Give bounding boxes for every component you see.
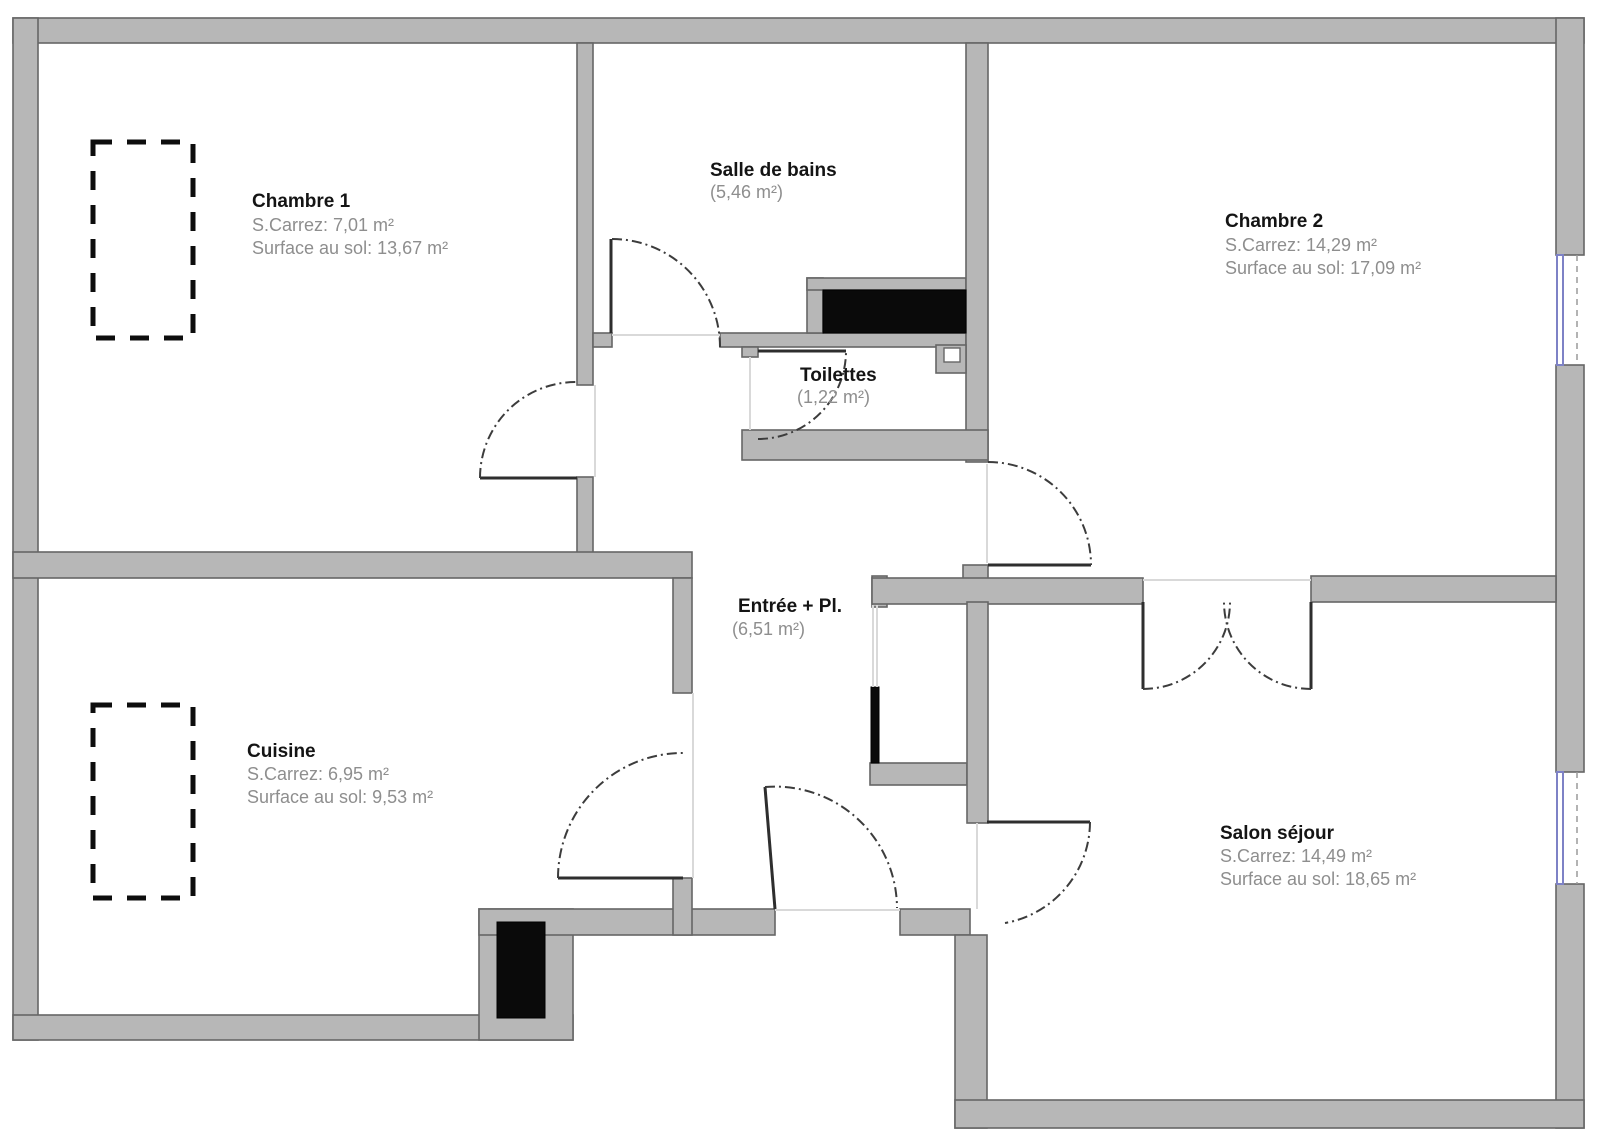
door-chambre2 (988, 462, 1091, 565)
room-labels: Chambre 1 S.Carrez: 7,01 m² Surface au s… (247, 160, 1421, 889)
room-label-chambre1: Chambre 1 S.Carrez: 7,01 m² Surface au s… (252, 191, 448, 258)
room-carrez: S.Carrez: 14,29 m² (1225, 235, 1377, 255)
wall-segment (870, 763, 967, 785)
dashed-zone-chambre1 (93, 142, 193, 338)
room-floor-area: Surface au sol: 18,65 m² (1220, 869, 1416, 889)
room-area: (6,51 m²) (732, 619, 805, 639)
window-symbol-chambre2 (1557, 255, 1577, 365)
wall-segment (966, 43, 988, 462)
wall-segment (673, 878, 692, 935)
room-floor-area: Surface au sol: 13,67 m² (252, 238, 448, 258)
room-label-salon: Salon séjour S.Carrez: 14,49 m² Surface … (1220, 823, 1416, 889)
door-salle-de-bains (611, 239, 720, 347)
bathtub-fixture (823, 290, 966, 333)
room-carrez: S.Carrez: 7,01 m² (252, 215, 394, 235)
wall-segment (593, 333, 612, 347)
wall-segment (742, 430, 988, 460)
dashed-zone-cuisine (93, 705, 193, 898)
room-carrez: S.Carrez: 14,49 m² (1220, 846, 1372, 866)
wall-segment (1556, 884, 1584, 1128)
floor-plan: Chambre 1 S.Carrez: 7,01 m² Surface au s… (0, 0, 1600, 1146)
wall-segment (1311, 576, 1556, 602)
wall-segment (955, 935, 987, 1128)
room-area: (1,22 m²) (797, 387, 870, 407)
wall-segment (872, 578, 1143, 604)
closet-fixture (871, 687, 879, 763)
wall-segment (900, 909, 970, 935)
room-name: Salle de bains (710, 160, 837, 181)
door-chambre1 (480, 382, 577, 478)
room-floor-area: Surface au sol: 9,53 m² (247, 787, 433, 807)
room-floor-area: Surface au sol: 17,09 m² (1225, 258, 1421, 278)
wall-segment (13, 552, 692, 578)
wall-segment (720, 333, 966, 347)
room-area: (5,46 m²) (710, 182, 783, 202)
room-carrez: S.Carrez: 6,95 m² (247, 764, 389, 784)
room-label-entree: Entrée + Pl. (6,51 m²) (732, 596, 842, 639)
door-entrance (765, 787, 897, 909)
door-cuisine (558, 753, 683, 878)
wall-segment (967, 602, 988, 823)
room-label-cuisine: Cuisine S.Carrez: 6,95 m² Surface au sol… (247, 741, 433, 807)
walls (13, 18, 1584, 1128)
wall-segment (742, 347, 758, 357)
room-label-chambre2: Chambre 2 S.Carrez: 14,29 m² Surface au … (1225, 211, 1421, 278)
wall-segment (1556, 18, 1584, 255)
window-symbol-salon (1557, 772, 1577, 884)
wall-segment (13, 18, 38, 1040)
door-salon (987, 822, 1090, 923)
room-name: Toilettes (800, 365, 877, 386)
room-name: Entrée + Pl. (738, 596, 842, 617)
wall-niche (944, 348, 960, 362)
room-name: Salon séjour (1220, 823, 1335, 844)
room-name: Chambre 2 (1225, 211, 1323, 232)
double-door-salon-chambre2 (1143, 602, 1311, 689)
kitchen-fixture (497, 922, 545, 1018)
room-label-salle-de-bains: Salle de bains (5,46 m²) (710, 160, 837, 202)
wall-segment (673, 578, 692, 693)
door-thresholds (595, 335, 1311, 910)
room-label-toilettes: Toilettes (1,22 m²) (797, 365, 877, 407)
wall-segment (1556, 365, 1584, 772)
floor-plan-page: Chambre 1 S.Carrez: 7,01 m² Surface au s… (0, 0, 1600, 1146)
room-name: Chambre 1 (252, 191, 351, 212)
wall-segment (13, 18, 1584, 43)
wall-segment (577, 477, 593, 554)
wall-segment (577, 43, 593, 385)
wall-segment (807, 278, 966, 290)
room-name: Cuisine (247, 741, 316, 762)
wall-segment (955, 1100, 1584, 1128)
